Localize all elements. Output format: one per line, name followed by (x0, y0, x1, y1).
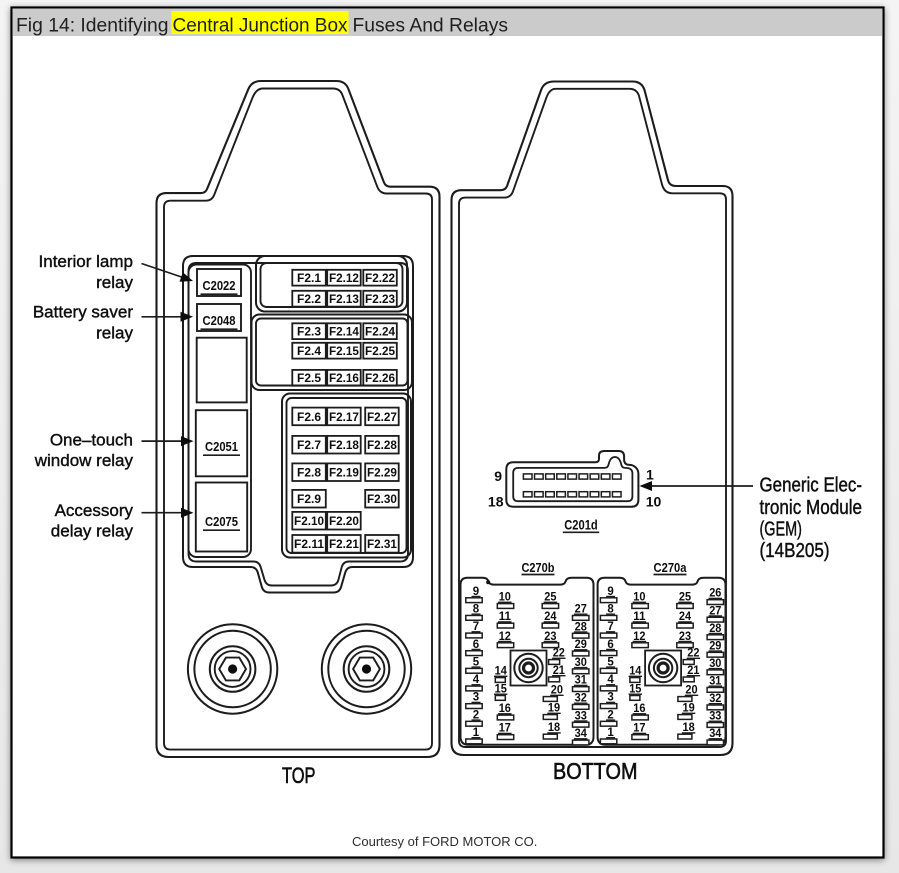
svg-text:window relay: window relay (34, 451, 134, 470)
svg-text:10: 10 (633, 590, 646, 604)
svg-text:Courtesy of FORD MOTOR CO.: Courtesy of FORD MOTOR CO. (352, 834, 537, 849)
svg-text:25: 25 (679, 590, 692, 604)
svg-text:F2.7: F2.7 (297, 438, 321, 452)
svg-text:12: 12 (633, 629, 646, 643)
svg-text:11: 11 (499, 609, 512, 623)
svg-text:C2022: C2022 (203, 278, 236, 293)
svg-text:28: 28 (709, 621, 722, 635)
svg-text:22: 22 (553, 646, 566, 660)
svg-text:20: 20 (551, 683, 564, 697)
svg-text:14: 14 (629, 664, 642, 678)
svg-text:8: 8 (473, 601, 480, 615)
svg-text:11: 11 (633, 609, 646, 623)
svg-text:33: 33 (709, 709, 722, 723)
svg-text:Accessory: Accessory (55, 501, 134, 520)
svg-text:F2.19: F2.19 (329, 466, 359, 480)
svg-text:F2.13: F2.13 (329, 292, 359, 306)
svg-text:32: 32 (575, 691, 588, 705)
svg-text:1: 1 (646, 467, 654, 483)
svg-text:6: 6 (473, 637, 480, 651)
svg-text:14: 14 (495, 664, 508, 678)
svg-text:30: 30 (575, 655, 588, 669)
svg-text:F2.18: F2.18 (329, 438, 359, 452)
svg-text:18: 18 (683, 720, 696, 734)
svg-text:20: 20 (685, 683, 698, 697)
svg-text:BOTTOM: BOTTOM (553, 758, 638, 784)
svg-text:F2.15: F2.15 (329, 344, 359, 358)
svg-text:19: 19 (683, 701, 696, 715)
svg-text:Interior lamp: Interior lamp (39, 252, 133, 271)
svg-text:8: 8 (607, 601, 614, 615)
svg-text:Fig 14: Identifying: Fig 14: Identifying (16, 15, 169, 36)
svg-text:12: 12 (499, 629, 512, 643)
svg-text:16: 16 (633, 701, 646, 715)
svg-text:C270a: C270a (654, 560, 688, 575)
svg-text:1: 1 (607, 725, 614, 739)
svg-text:15: 15 (629, 682, 642, 696)
svg-text:18: 18 (548, 720, 561, 734)
svg-text:6: 6 (607, 637, 614, 651)
svg-text:1: 1 (473, 725, 480, 739)
svg-text:10: 10 (499, 590, 512, 604)
svg-text:5: 5 (473, 654, 480, 668)
svg-text:F2.31: F2.31 (367, 537, 397, 551)
svg-text:21: 21 (687, 663, 700, 677)
svg-text:2: 2 (473, 707, 480, 721)
svg-text:C201d: C201d (564, 516, 598, 532)
svg-text:relay: relay (96, 273, 133, 292)
svg-text:F2.27: F2.27 (367, 410, 397, 424)
svg-text:16: 16 (499, 701, 512, 715)
svg-text:30: 30 (709, 656, 722, 670)
svg-text:23: 23 (679, 629, 692, 643)
svg-text:9: 9 (494, 468, 502, 484)
svg-text:F2.3: F2.3 (297, 325, 321, 339)
svg-text:Fuses And Relays: Fuses And Relays (353, 15, 509, 36)
svg-text:relay: relay (96, 323, 133, 342)
svg-text:C270b: C270b (522, 560, 555, 575)
svg-text:F2.11: F2.11 (294, 537, 324, 551)
svg-text:F2.12: F2.12 (329, 271, 359, 285)
svg-text:F2.2: F2.2 (297, 292, 321, 306)
svg-text:TOP: TOP (282, 763, 316, 788)
svg-text:C2075: C2075 (205, 514, 238, 529)
svg-text:31: 31 (709, 673, 722, 687)
svg-text:23: 23 (544, 629, 557, 643)
svg-text:22: 22 (687, 646, 700, 660)
svg-text:F2.21: F2.21 (329, 537, 359, 551)
svg-text:18: 18 (488, 493, 504, 509)
svg-text:3: 3 (607, 690, 614, 704)
svg-text:29: 29 (709, 638, 722, 652)
svg-text:5: 5 (607, 654, 614, 668)
svg-text:C2048: C2048 (203, 313, 236, 328)
svg-text:F2.5: F2.5 (297, 371, 321, 385)
svg-text:F2.30: F2.30 (367, 492, 397, 506)
svg-text:27: 27 (575, 602, 588, 616)
svg-text:One–touch: One–touch (50, 430, 133, 449)
svg-text:(14B205): (14B205) (760, 539, 830, 562)
svg-text:F2.23: F2.23 (365, 292, 395, 306)
svg-text:F2.29: F2.29 (367, 466, 397, 480)
svg-text:3: 3 (473, 690, 480, 704)
svg-text:Battery saver: Battery saver (33, 302, 133, 321)
svg-text:17: 17 (499, 721, 512, 735)
svg-text:19: 19 (548, 701, 561, 715)
svg-text:29: 29 (575, 637, 588, 651)
svg-text:C2051: C2051 (205, 439, 238, 454)
svg-text:2: 2 (607, 707, 614, 721)
svg-text:F2.6: F2.6 (297, 410, 321, 424)
svg-text:9: 9 (473, 584, 480, 598)
svg-text:34: 34 (575, 726, 588, 740)
svg-text:4: 4 (473, 672, 480, 686)
svg-text:27: 27 (709, 603, 722, 617)
svg-text:17: 17 (633, 721, 646, 735)
svg-text:24: 24 (679, 609, 692, 623)
svg-text:F2.4: F2.4 (297, 344, 321, 358)
svg-text:33: 33 (575, 708, 588, 722)
svg-text:32: 32 (709, 691, 722, 705)
svg-text:28: 28 (575, 619, 588, 633)
svg-text:Central Junction Box: Central Junction Box (173, 15, 348, 36)
svg-text:(GEM): (GEM) (760, 518, 803, 541)
svg-text:21: 21 (553, 663, 566, 677)
svg-text:15: 15 (495, 682, 508, 696)
svg-text:9: 9 (607, 584, 614, 598)
svg-text:Generic Elec-: Generic Elec- (760, 474, 863, 497)
svg-text:F2.16: F2.16 (329, 371, 359, 385)
svg-text:tronic Module: tronic Module (760, 496, 863, 519)
svg-text:24: 24 (544, 609, 557, 623)
svg-text:F2.8: F2.8 (297, 466, 321, 480)
svg-text:F2.25: F2.25 (365, 344, 395, 358)
svg-text:F2.9: F2.9 (297, 492, 321, 506)
svg-text:F2.20: F2.20 (329, 514, 359, 528)
svg-text:F2.28: F2.28 (367, 438, 397, 452)
svg-text:25: 25 (544, 590, 557, 604)
svg-text:F2.26: F2.26 (365, 371, 395, 385)
svg-text:10: 10 (646, 494, 662, 510)
svg-text:F2.10: F2.10 (294, 514, 324, 528)
svg-text:F2.14: F2.14 (329, 325, 359, 339)
svg-text:F2.1: F2.1 (297, 271, 321, 285)
svg-text:delay relay: delay relay (51, 521, 134, 540)
svg-text:4: 4 (607, 672, 614, 686)
svg-text:F2.24: F2.24 (365, 325, 395, 339)
svg-text:34: 34 (709, 726, 722, 740)
svg-text:7: 7 (607, 619, 614, 633)
svg-text:26: 26 (709, 586, 722, 600)
svg-text:F2.22: F2.22 (365, 271, 395, 285)
svg-text:31: 31 (575, 673, 588, 687)
svg-text:F2.17: F2.17 (329, 410, 359, 424)
svg-text:7: 7 (473, 619, 480, 633)
